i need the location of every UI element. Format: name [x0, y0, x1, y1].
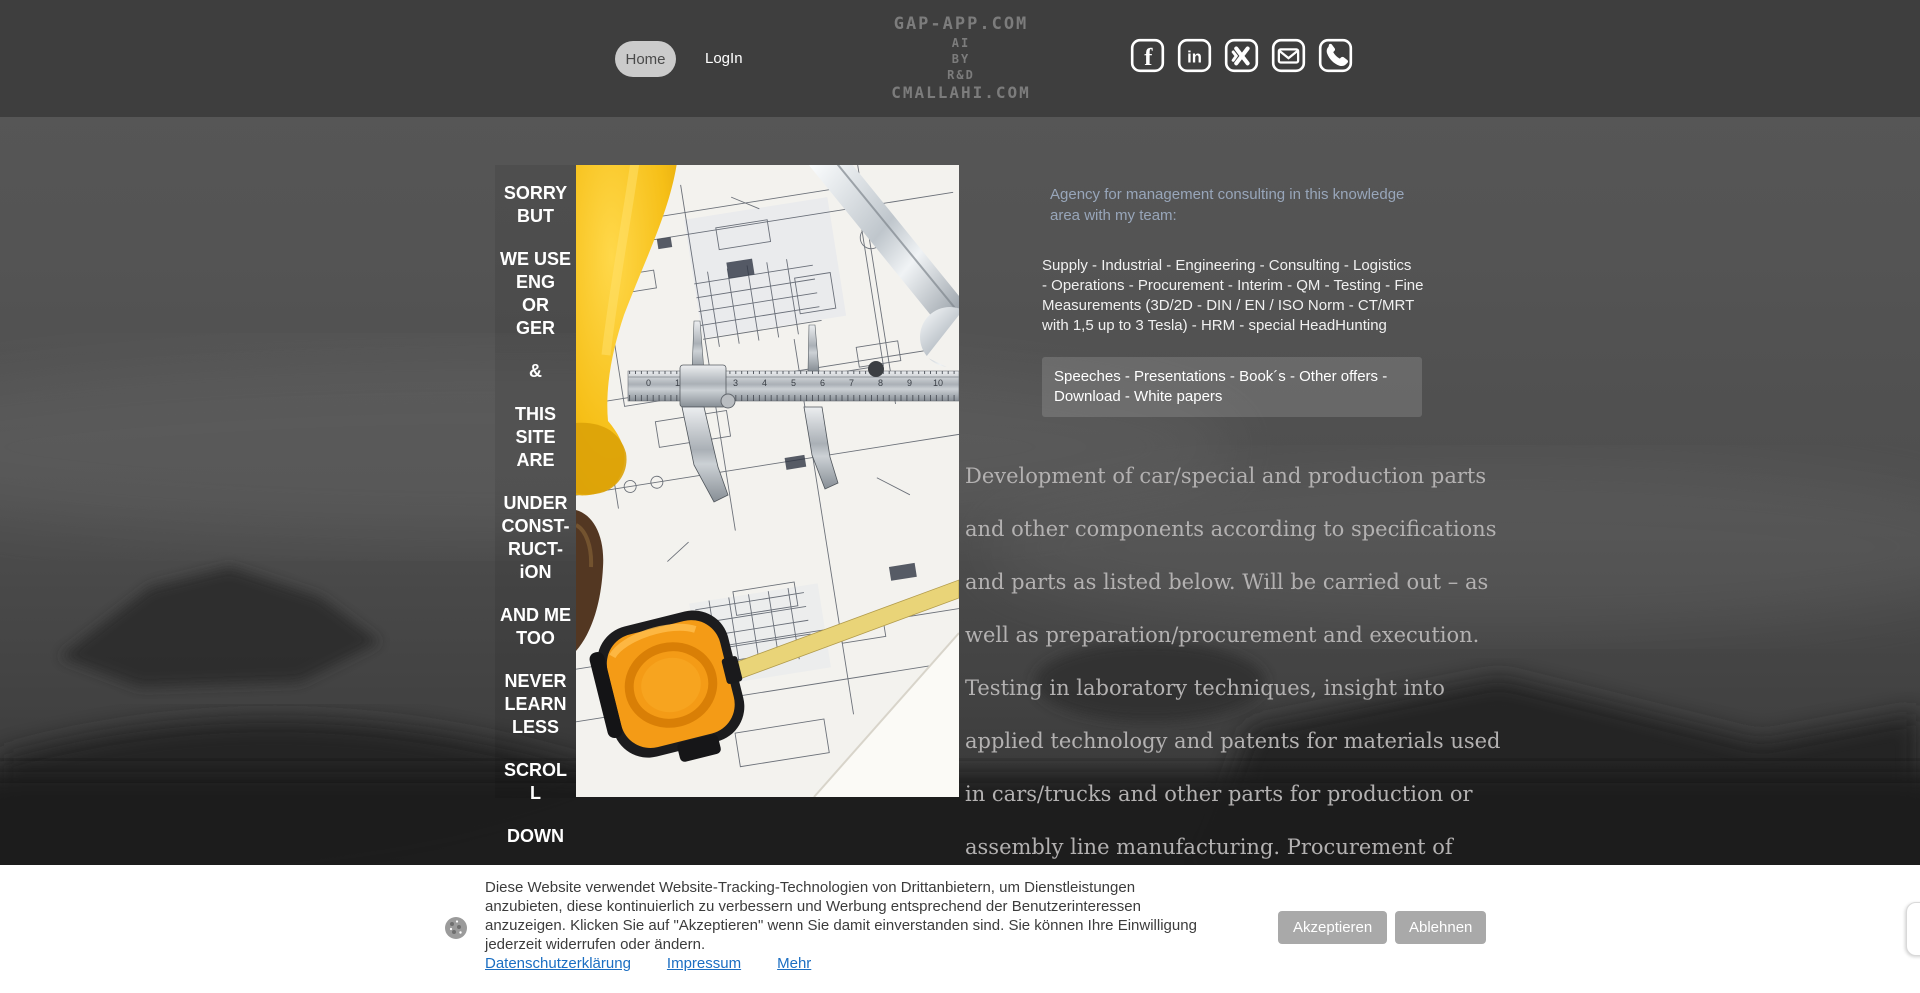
- nav-login-button[interactable]: LogIn: [699, 49, 749, 68]
- logo-line: R&D: [891, 67, 1031, 83]
- text-line: Speeches - Presentations - Book´s - Othe…: [1054, 367, 1410, 387]
- social-links: f in: [1130, 38, 1353, 73]
- svg-text:6: 6: [820, 378, 825, 388]
- svg-text:1: 1: [675, 378, 680, 388]
- blueprint-image: 012 345 678 910: [576, 165, 959, 797]
- description-paragraph: Development of car/special and productio…: [965, 450, 1445, 874]
- text-line: applied technology and patents for mater…: [965, 715, 1445, 768]
- text-line: Supply - Industrial - Engineering - Cons…: [1042, 256, 1432, 276]
- logo-line: AI: [891, 35, 1031, 51]
- text-line: and parts as listed below. Will be carri…: [965, 556, 1445, 609]
- svg-text:f: f: [1144, 44, 1153, 71]
- svg-text:10: 10: [933, 378, 943, 388]
- text-line: Diese Website verwendet Website-Tracking…: [485, 878, 1197, 897]
- sidebar-paragraph: DOWN: [474, 825, 597, 848]
- agency-intro: Agency for management consulting in this…: [1050, 184, 1430, 226]
- logo-line: BY: [891, 51, 1031, 67]
- offers-box: Speeches - Presentations - Book´s - Othe…: [1042, 357, 1422, 417]
- cookie-link[interactable]: Mehr: [777, 955, 811, 972]
- svg-text:4: 4: [762, 378, 767, 388]
- header-bar: Home LogIn GAP-APP.COMAIBYR&DCMALLAHI.CO…: [0, 0, 1920, 117]
- email-icon[interactable]: [1271, 38, 1306, 73]
- svg-text:9: 9: [907, 378, 912, 388]
- linkedin-icon[interactable]: in: [1177, 38, 1212, 73]
- nav-home-button[interactable]: Home: [615, 41, 676, 77]
- accept-button[interactable]: Akzeptieren: [1278, 911, 1387, 944]
- text-line: with 1,5 up to 3 Tesla) - HRM - special …: [1042, 316, 1432, 336]
- cookie-icon: [443, 915, 469, 941]
- text-line: Measurements (3D/2D - DIN / EN / ISO Nor…: [1042, 296, 1432, 316]
- text-line: DOWN: [474, 825, 597, 848]
- text-line: area with my team:: [1050, 205, 1430, 226]
- text-line: Agency for management consulting in this…: [1050, 184, 1430, 205]
- text-line: anzuzeigen. Klicken Sie auf "Akzeptieren…: [485, 916, 1197, 935]
- cookie-link[interactable]: Impressum: [667, 955, 741, 972]
- xing-icon[interactable]: [1224, 38, 1259, 73]
- text-line: Download - White papers: [1054, 387, 1410, 407]
- cookie-link[interactable]: Datenschutzerklärung: [485, 955, 631, 972]
- svg-text:0: 0: [646, 378, 651, 388]
- text-line: - Operations - Procurement - Interim - Q…: [1042, 276, 1432, 296]
- services-list: Supply - Industrial - Engineering - Cons…: [1042, 256, 1432, 336]
- cookie-links: DatenschutzerklärungImpressumMehr: [485, 955, 811, 972]
- text-line: anzubieten, diese kontinuierlich zu verb…: [485, 897, 1197, 916]
- svg-text:5: 5: [791, 378, 796, 388]
- site-logo: GAP-APP.COMAIBYR&DCMALLAHI.COM: [891, 13, 1031, 102]
- logo-line: CMALLAHI.COM: [891, 83, 1031, 102]
- text-line: Development of car/special and productio…: [965, 450, 1445, 503]
- svg-text:7: 7: [849, 378, 854, 388]
- svg-text:3: 3: [733, 378, 738, 388]
- facebook-icon[interactable]: f: [1130, 38, 1165, 73]
- text-line: well as preparation/procurement and exec…: [965, 609, 1445, 662]
- seascape-background: [0, 117, 1920, 865]
- decline-button[interactable]: Ablehnen: [1395, 911, 1486, 944]
- cookie-message: Diese Website verwendet Website-Tracking…: [485, 878, 1197, 954]
- text-line: and other components according to specif…: [965, 503, 1445, 556]
- text-line: in cars/trucks and other parts for produ…: [965, 768, 1445, 821]
- page: Home LogIn GAP-APP.COMAIBYR&DCMALLAHI.CO…: [0, 0, 1920, 993]
- svg-text:in: in: [1187, 48, 1202, 67]
- phone-icon[interactable]: [1318, 38, 1353, 73]
- text-line: Testing in laboratory techniques, insigh…: [965, 662, 1445, 715]
- text-line: jederzeit widerrufen oder ändern.: [485, 935, 1197, 954]
- svg-text:8: 8: [878, 378, 883, 388]
- logo-line: GAP-APP.COM: [891, 13, 1031, 35]
- cookie-settings-tab[interactable]: [1906, 902, 1920, 956]
